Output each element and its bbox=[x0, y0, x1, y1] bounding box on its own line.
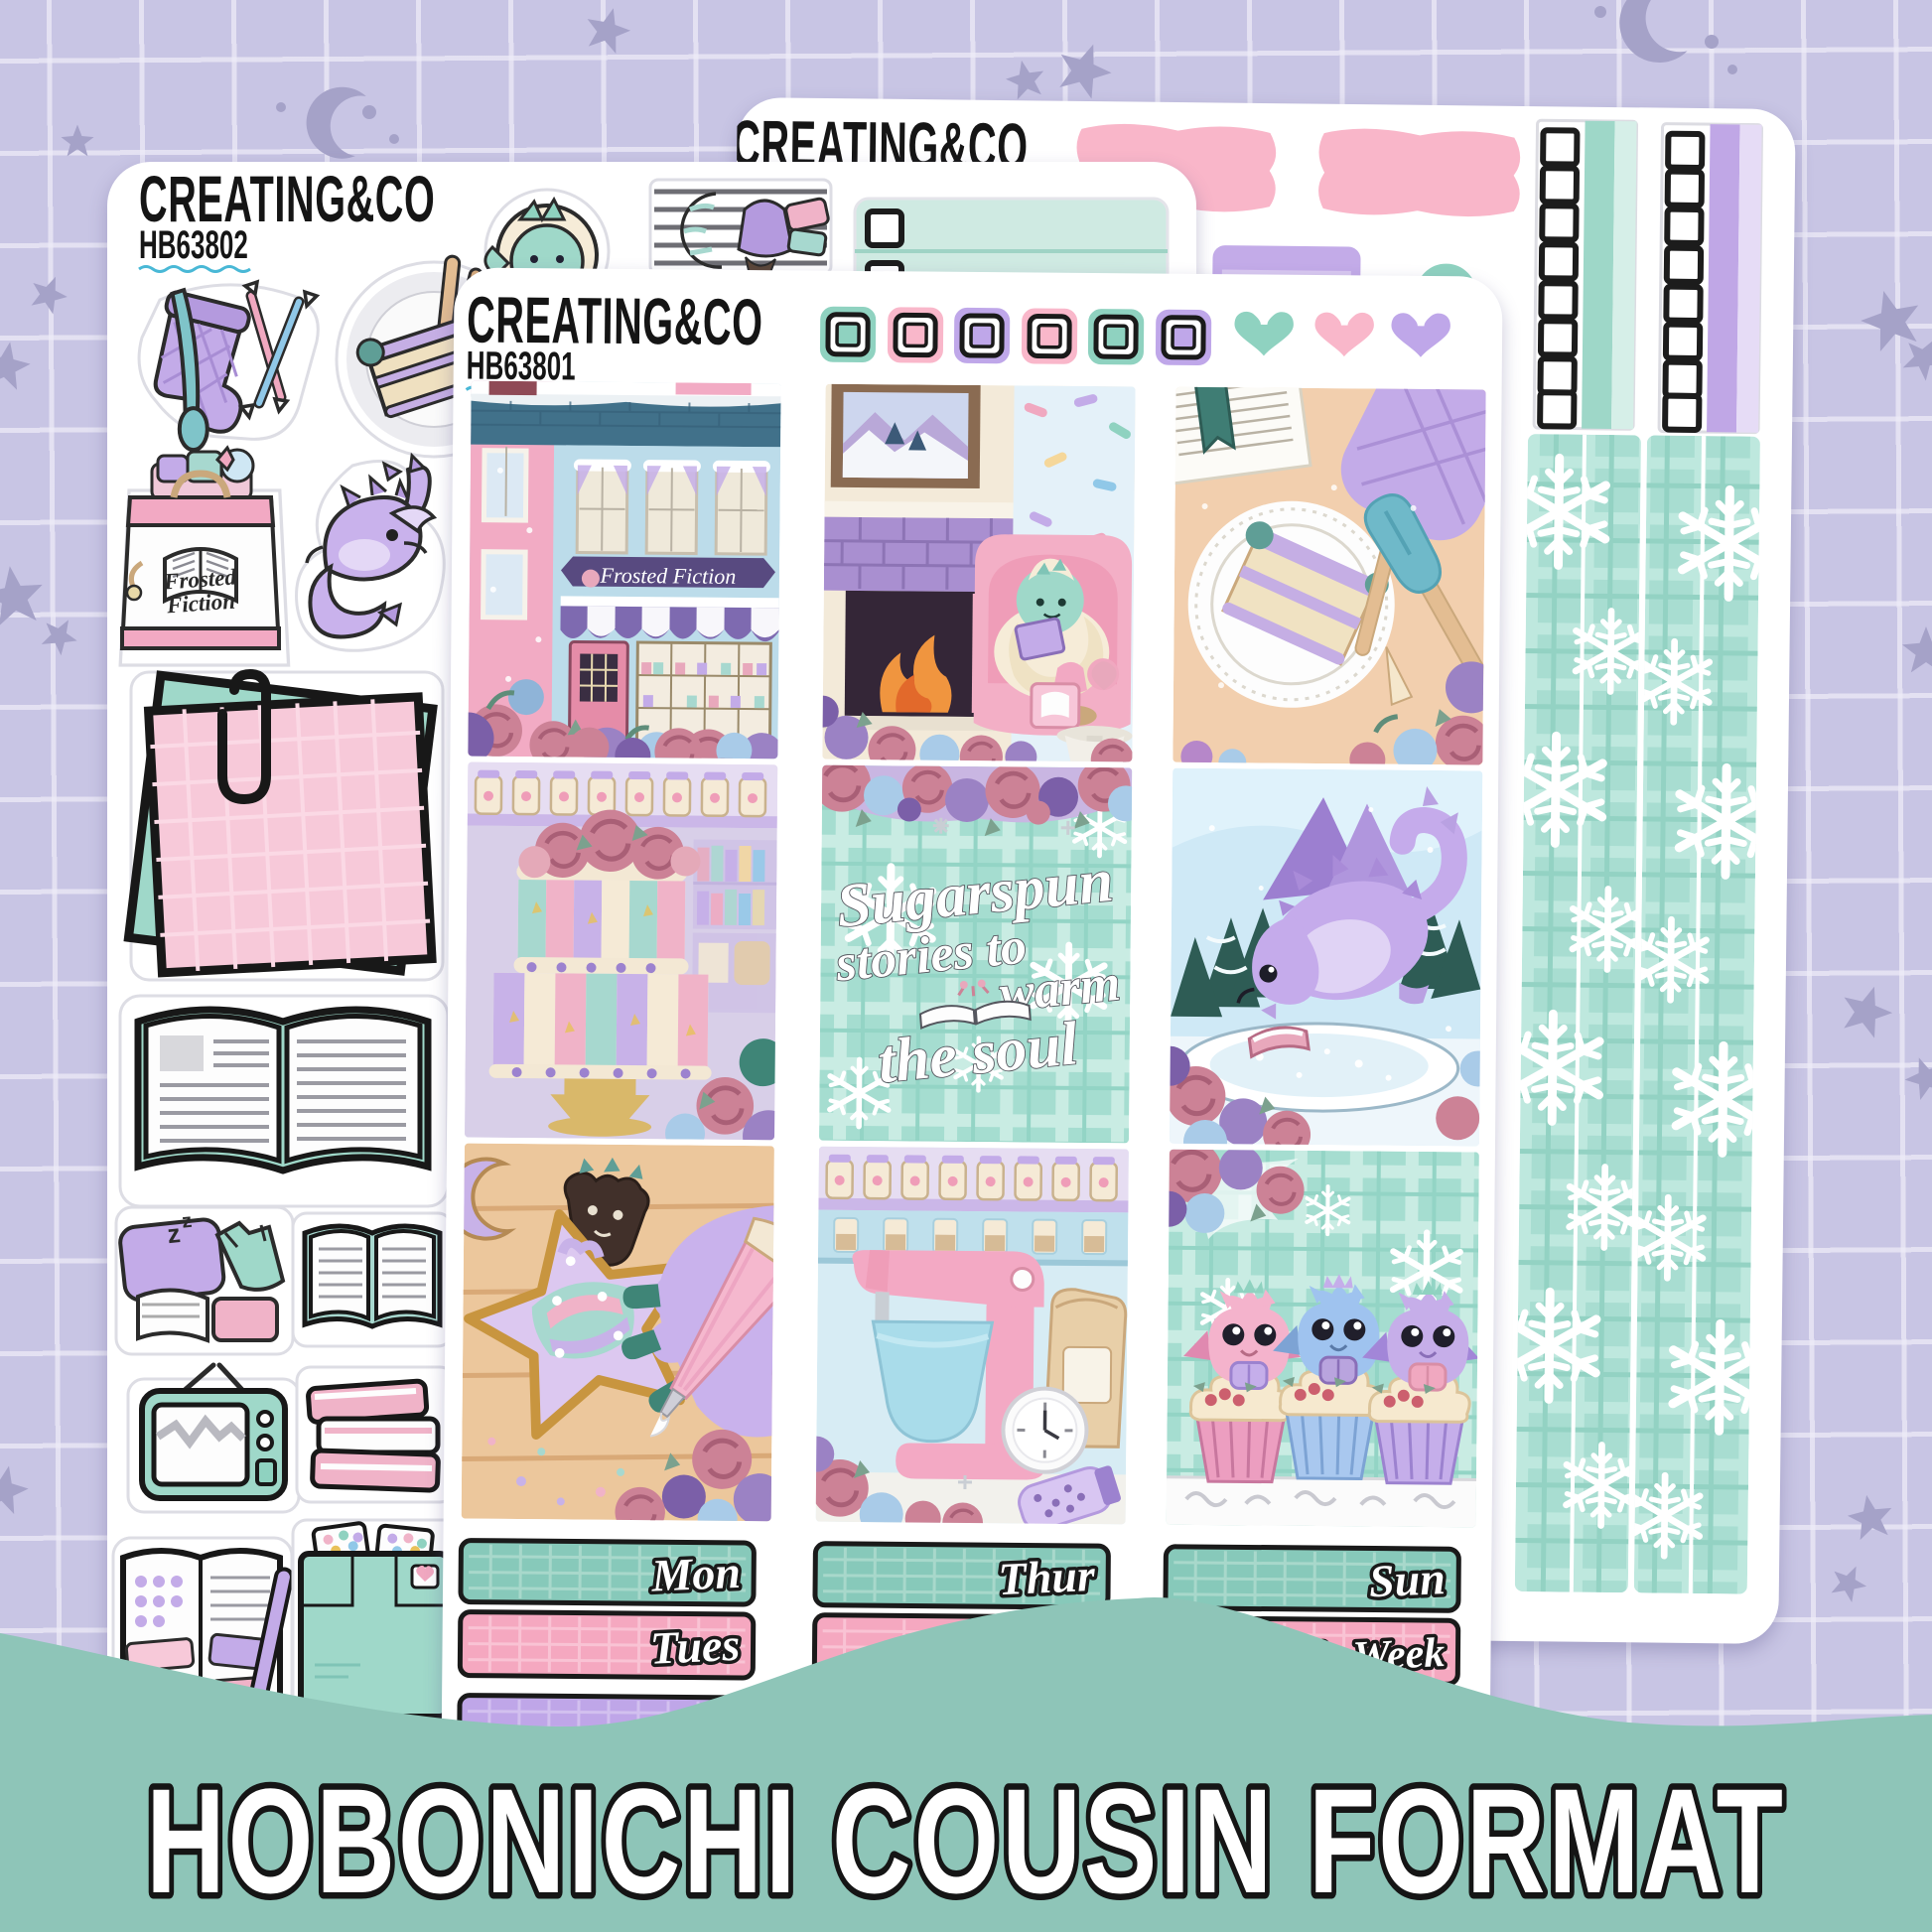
svg-text:HOBONICHI COUSIN FORMAT: HOBONICHI COUSIN FORMAT bbox=[146, 1757, 1786, 1924]
